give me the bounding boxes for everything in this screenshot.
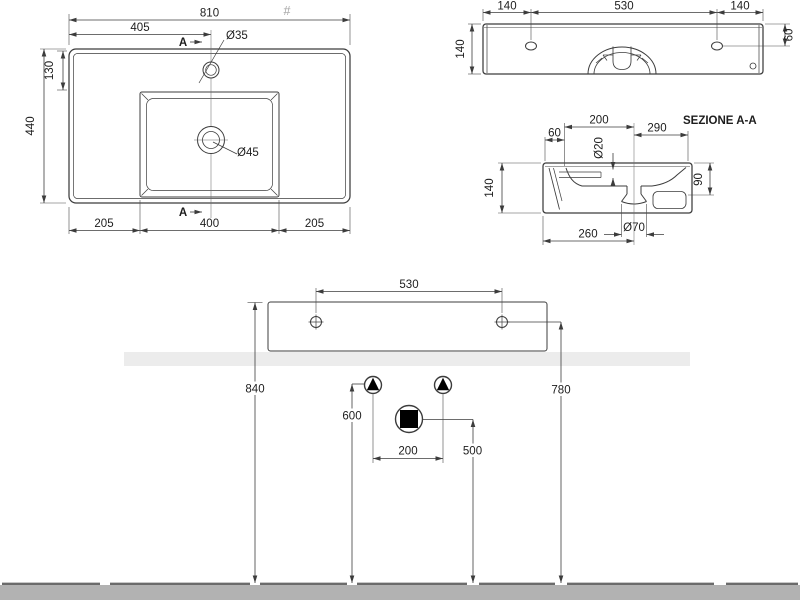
hash-mark: # [284,4,291,18]
counter-band [124,352,690,366]
dim-tap-hole: Ø35 [226,30,248,42]
dim-205-left: 205 [94,218,113,230]
dim-205-right: 205 [305,218,324,230]
dim-drain: Ø45 [237,147,259,159]
floor-band [0,585,800,600]
dim-290: 290 [647,123,666,135]
dim-405: 405 [130,22,149,34]
dim-90: 90 [693,173,705,186]
installation-view: 530 840 780 600 500 200 [0,279,800,600]
dim-810: 810 [200,8,219,20]
dim-600: 600 [342,411,361,423]
dim-130: 130 [44,61,56,80]
section-outline [543,163,692,213]
dim-440: 440 [25,116,37,135]
water-supply-symbol-right [435,377,452,394]
section-title: SEZIONE A-A [683,115,757,127]
rear-edge-view: 140 530 140 140 60 [455,1,796,75]
washbasin-technical-drawing: 810 405 Ø35 Ø45 A A 130 440 205 400 205 … [0,0,800,600]
dim-840: 840 [245,384,264,396]
plan-top-view: 810 405 Ø35 Ø45 A A 130 440 205 400 205 … [25,4,350,234]
section-view: SEZIONE A-A 60 200 290 Ø20 140 90 Ø70 26… [484,115,757,246]
dim-140-height: 140 [455,39,467,58]
dim-140-section: 140 [484,178,496,197]
dim-400: 400 [200,218,219,230]
dim-60-ledge: 60 [548,128,561,140]
technical-drawing-sheet: 810 405 Ø35 Ø45 A A 130 440 205 400 205 … [0,0,800,600]
dim-530-install: 530 [399,279,418,291]
dim-60: 60 [784,29,796,42]
dim-overflow: Ø20 [594,137,606,159]
dim-200-install: 200 [398,446,417,458]
dim-200-section: 200 [589,115,608,127]
section-marker-top: A [179,37,187,49]
dim-530: 530 [614,1,633,13]
dim-260: 260 [578,229,597,241]
dim-780: 780 [551,385,570,397]
dim-140-right: 140 [730,1,749,13]
dim-140-left: 140 [497,1,516,13]
section-marker-bottom: A [179,207,187,219]
waste-outlet-symbol [396,406,423,433]
water-supply-symbol-left [365,377,382,394]
dim-500: 500 [463,446,482,458]
dim-outlet: Ø70 [623,222,645,234]
